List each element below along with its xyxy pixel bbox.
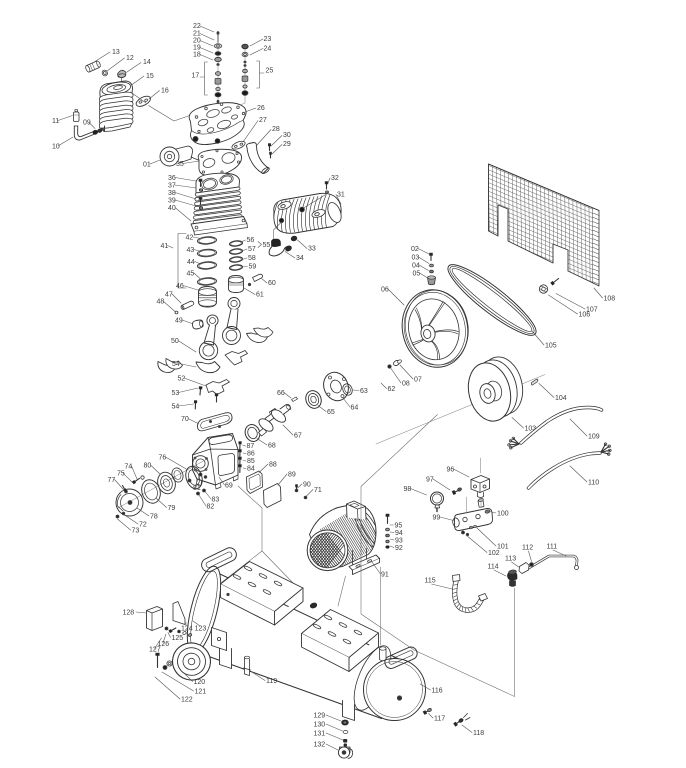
- svg-text:32: 32: [331, 175, 339, 182]
- svg-text:124 123: 124 123: [181, 626, 206, 633]
- svg-text:95: 95: [395, 523, 403, 530]
- svg-text:69: 69: [225, 483, 233, 490]
- svg-text:77: 77: [108, 477, 116, 484]
- svg-text:49: 49: [175, 318, 183, 325]
- svg-text:13: 13: [112, 49, 120, 56]
- svg-text:63: 63: [360, 388, 368, 395]
- svg-text:82: 82: [207, 504, 215, 511]
- svg-text:125: 125: [172, 635, 184, 642]
- svg-text:07: 07: [414, 377, 422, 384]
- svg-text:117: 117: [434, 716, 445, 723]
- svg-text:62: 62: [388, 386, 396, 393]
- svg-text:130: 130: [314, 722, 326, 729]
- svg-text:120: 120: [194, 679, 206, 686]
- svg-text:76: 76: [159, 455, 167, 462]
- svg-text:67: 67: [294, 433, 302, 440]
- svg-text:94: 94: [395, 530, 403, 537]
- svg-text:30: 30: [283, 132, 291, 139]
- svg-text:10: 10: [52, 144, 60, 151]
- svg-text:84: 84: [247, 466, 255, 473]
- svg-text:21: 21: [193, 31, 201, 38]
- svg-text:15: 15: [146, 73, 154, 80]
- svg-text:105: 105: [545, 343, 557, 350]
- svg-text:59: 59: [249, 264, 257, 271]
- svg-text:108: 108: [604, 296, 616, 303]
- svg-text:38: 38: [168, 190, 176, 197]
- svg-text:80: 80: [144, 463, 152, 470]
- svg-text:113: 113: [505, 556, 516, 563]
- svg-text:74: 74: [125, 464, 133, 471]
- svg-text:102: 102: [488, 550, 500, 557]
- svg-text:66: 66: [277, 390, 285, 397]
- svg-text:110: 110: [588, 480, 599, 487]
- svg-text:114: 114: [488, 564, 499, 571]
- svg-text:72: 72: [139, 522, 147, 529]
- svg-text:54: 54: [172, 404, 180, 411]
- svg-text:121: 121: [195, 689, 207, 696]
- svg-text:14: 14: [143, 59, 151, 66]
- svg-text:16: 16: [161, 88, 169, 95]
- svg-text:35: 35: [176, 161, 184, 168]
- svg-text:29: 29: [283, 141, 291, 148]
- svg-text:04: 04: [412, 263, 420, 270]
- svg-text:24: 24: [264, 46, 272, 53]
- svg-text:93: 93: [395, 538, 403, 545]
- svg-text:34: 34: [296, 255, 304, 262]
- svg-text:119: 119: [266, 678, 277, 685]
- svg-text:71: 71: [314, 487, 322, 494]
- svg-text:99: 99: [433, 515, 441, 522]
- svg-text:85: 85: [247, 458, 255, 465]
- svg-text:56: 56: [247, 237, 255, 244]
- svg-text:79: 79: [168, 505, 176, 512]
- svg-text:65: 65: [327, 409, 335, 416]
- svg-text:100: 100: [497, 511, 509, 518]
- svg-text:104: 104: [555, 395, 567, 402]
- svg-text:39: 39: [168, 198, 176, 205]
- svg-text:43: 43: [187, 247, 195, 254]
- svg-text:41: 41: [161, 243, 169, 250]
- svg-text:05: 05: [413, 271, 421, 278]
- svg-text:78: 78: [150, 514, 158, 521]
- svg-text:23: 23: [264, 36, 272, 43]
- svg-text:90: 90: [303, 482, 311, 489]
- svg-text:19: 19: [193, 45, 201, 52]
- svg-text:06: 06: [381, 287, 389, 294]
- svg-text:57: 57: [248, 246, 256, 253]
- svg-text:68: 68: [268, 443, 276, 450]
- svg-text:116: 116: [432, 688, 443, 695]
- svg-text:36: 36: [168, 175, 176, 182]
- svg-text:33: 33: [308, 246, 316, 253]
- svg-text:31: 31: [337, 192, 345, 199]
- svg-text:46: 46: [176, 283, 184, 290]
- svg-text:02: 02: [411, 246, 419, 253]
- svg-text:53: 53: [172, 390, 180, 397]
- svg-text:64: 64: [351, 405, 359, 412]
- svg-text:109: 109: [588, 434, 600, 441]
- svg-text:18: 18: [193, 52, 201, 59]
- svg-text:03: 03: [412, 255, 420, 262]
- svg-text:37: 37: [168, 183, 176, 190]
- svg-text:48: 48: [157, 299, 165, 306]
- svg-text:111: 111: [547, 544, 558, 551]
- svg-text:55: 55: [263, 242, 271, 249]
- svg-text:58: 58: [248, 255, 256, 262]
- svg-text:40: 40: [168, 205, 176, 212]
- svg-text:52: 52: [178, 376, 186, 383]
- svg-text:45: 45: [187, 271, 195, 278]
- svg-text:86: 86: [247, 451, 255, 458]
- svg-text:08: 08: [402, 381, 410, 388]
- svg-text:22: 22: [193, 23, 201, 30]
- svg-text:42: 42: [186, 235, 194, 242]
- svg-text:106: 106: [579, 312, 591, 319]
- svg-text:01: 01: [143, 162, 151, 169]
- svg-text:89: 89: [288, 472, 296, 479]
- svg-text:70: 70: [181, 416, 189, 423]
- svg-text:60: 60: [268, 280, 276, 287]
- svg-text:12: 12: [126, 55, 134, 62]
- svg-text:50: 50: [171, 338, 179, 345]
- svg-text:131: 131: [314, 731, 326, 738]
- svg-text:91: 91: [381, 572, 389, 579]
- svg-text:92: 92: [395, 545, 403, 552]
- svg-text:115: 115: [425, 578, 436, 585]
- svg-text:61: 61: [256, 292, 264, 299]
- svg-text:132: 132: [314, 742, 326, 749]
- svg-text:98: 98: [404, 486, 412, 493]
- svg-text:83: 83: [212, 497, 220, 504]
- svg-text:17: 17: [192, 73, 200, 80]
- svg-text:11: 11: [52, 118, 59, 125]
- svg-text:128: 128: [123, 610, 135, 617]
- svg-text:97: 97: [426, 477, 434, 484]
- svg-text:112: 112: [522, 545, 533, 552]
- svg-text:54: 54: [172, 361, 180, 368]
- svg-text:26: 26: [257, 105, 265, 112]
- svg-text:20: 20: [193, 38, 201, 45]
- svg-text:25: 25: [266, 68, 274, 75]
- svg-text:27: 27: [259, 117, 267, 124]
- svg-text:44: 44: [187, 259, 195, 266]
- svg-text:47: 47: [165, 292, 173, 299]
- svg-text:73: 73: [132, 528, 140, 535]
- svg-text:122: 122: [181, 697, 193, 704]
- svg-text:96: 96: [447, 467, 455, 474]
- svg-text:87: 87: [247, 443, 255, 450]
- svg-text:118: 118: [473, 730, 484, 737]
- svg-text:28: 28: [272, 126, 280, 133]
- svg-text:129: 129: [314, 713, 326, 720]
- svg-text:88: 88: [269, 462, 277, 469]
